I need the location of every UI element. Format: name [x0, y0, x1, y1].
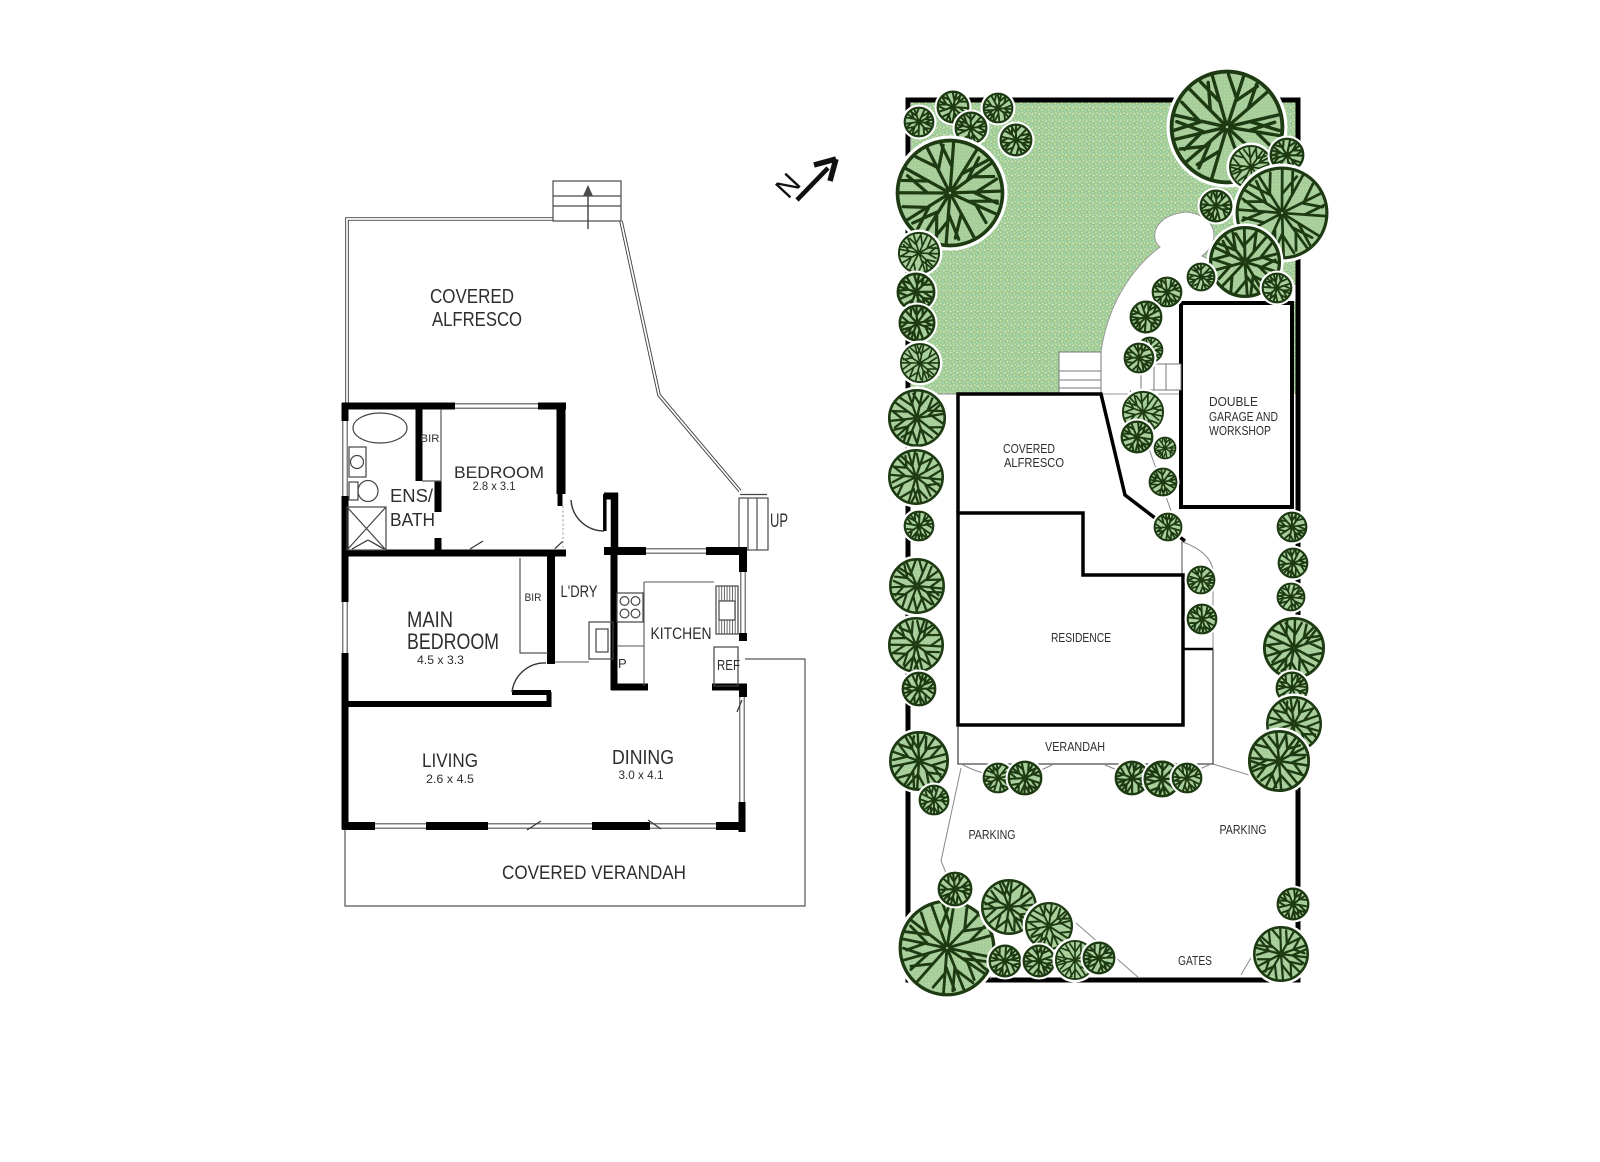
- svg-text:3.0 x 4.1: 3.0 x 4.1: [619, 770, 664, 782]
- svg-text:WORKSHOP: WORKSHOP: [1209, 423, 1271, 438]
- svg-text:BEDROOM: BEDROOM: [454, 463, 544, 482]
- svg-text:ENS/: ENS/: [390, 485, 434, 506]
- svg-text:PARKING: PARKING: [1220, 822, 1267, 837]
- svg-text:BATH: BATH: [390, 509, 435, 530]
- svg-text:ALFRESCO: ALFRESCO: [432, 308, 522, 331]
- svg-text:RESIDENCE: RESIDENCE: [1051, 630, 1111, 645]
- svg-text:BIR: BIR: [525, 592, 542, 604]
- svg-text:DINING: DINING: [612, 747, 674, 769]
- svg-text:BEDROOM: BEDROOM: [407, 629, 499, 654]
- svg-text:ALFRESCO: ALFRESCO: [1004, 455, 1064, 470]
- svg-text:4.5 x 3.3: 4.5 x 3.3: [417, 655, 464, 667]
- svg-text:DOUBLE: DOUBLE: [1209, 394, 1258, 409]
- svg-text:P: P: [618, 656, 627, 671]
- svg-text:GATES: GATES: [1178, 953, 1212, 968]
- svg-text:PARKING: PARKING: [969, 827, 1016, 842]
- svg-text:BIR: BIR: [421, 433, 440, 445]
- svg-text:LIVING: LIVING: [422, 750, 478, 772]
- svg-text:KITCHEN: KITCHEN: [651, 625, 712, 643]
- svg-text:REF: REF: [717, 657, 740, 674]
- svg-text:2.8 x 3.1: 2.8 x 3.1: [473, 481, 516, 493]
- svg-text:COVERED: COVERED: [430, 285, 514, 308]
- svg-text:L'DRY: L'DRY: [561, 582, 598, 601]
- svg-text:GARAGE AND: GARAGE AND: [1209, 409, 1278, 424]
- svg-text:2.6 x 4.5: 2.6 x 4.5: [426, 774, 474, 786]
- svg-text:COVERED: COVERED: [1003, 441, 1055, 456]
- svg-text:COVERED VERANDAH: COVERED VERANDAH: [502, 862, 686, 884]
- svg-text:VERANDAH: VERANDAH: [1045, 739, 1105, 754]
- svg-text:UP: UP: [770, 511, 788, 532]
